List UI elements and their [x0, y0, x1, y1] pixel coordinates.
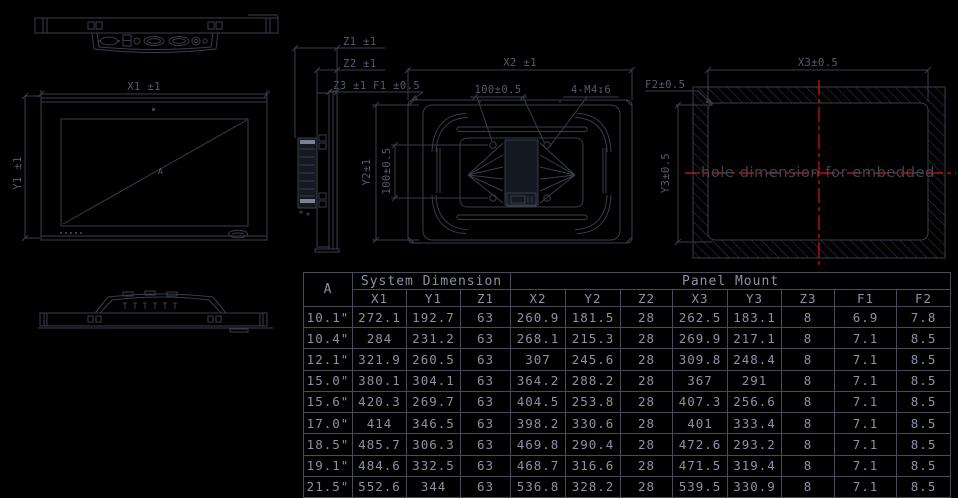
top-rear-housing: [95, 291, 226, 313]
dim-y3-label: Y3±0.5: [660, 153, 672, 193]
value-cell: 248.4: [728, 349, 782, 370]
value-cell: 346.5: [407, 413, 461, 434]
value-cell: 291: [728, 370, 782, 391]
value-cell: 398.2: [511, 413, 566, 434]
value-cell: 8: [782, 328, 835, 349]
value-cell: 304.1: [407, 370, 461, 391]
front-view-body: A: [41, 98, 267, 240]
bottom-io-view: [30, 5, 285, 63]
value-cell: 288.2: [566, 370, 621, 391]
value-cell: 28: [621, 328, 673, 349]
front-view-dimensions: X1 ±1 Y1 ±1: [12, 81, 270, 241]
value-cell: 330.9: [728, 476, 782, 497]
value-cell: 260.9: [511, 307, 566, 328]
dim-f2-label: F2±0.5: [645, 79, 685, 91]
col-header-x2: X2: [511, 290, 566, 307]
vesa-hole: [490, 142, 496, 148]
sub-header-row: X1Y1Z1X2Y2Z2X3Y3Z3F1F2: [304, 290, 951, 307]
dim-vesa-100h-label: 100±0.5: [474, 84, 521, 96]
value-cell: 306.3: [407, 434, 461, 455]
value-cell: 7.1: [835, 413, 897, 434]
table-row: 19.1"484.6332.563468.7316.628471.5319.48…: [304, 455, 951, 476]
size-cell: 19.1": [304, 455, 353, 476]
value-cell: 28: [621, 307, 673, 328]
value-cell: 63: [461, 434, 511, 455]
value-cell: 7.1: [835, 476, 897, 497]
value-cell: 269.7: [407, 391, 461, 412]
col-header-z2: Z2: [621, 290, 673, 307]
size-cell: 10.4": [304, 328, 353, 349]
size-cell: 21.5": [304, 476, 353, 497]
size-cell: 15.0": [304, 370, 353, 391]
table-row: 15.0"380.1304.163364.2288.22836729187.18…: [304, 370, 951, 391]
value-cell: 333.4: [728, 413, 782, 434]
value-cell: 407.3: [673, 391, 728, 412]
value-cell: 404.5: [511, 391, 566, 412]
dim-x1-label: X1 ±1: [127, 81, 161, 93]
value-cell: 290.4: [566, 434, 621, 455]
value-cell: 8: [782, 455, 835, 476]
value-cell: 6.9: [835, 307, 897, 328]
value-cell: 268.1: [511, 328, 566, 349]
value-cell: 8.5: [897, 434, 951, 455]
value-cell: 28: [621, 413, 673, 434]
col-header-size: A: [304, 273, 353, 307]
diagonal-size-label: A: [158, 167, 163, 176]
vesa-hole: [490, 195, 496, 201]
value-cell: 28: [621, 349, 673, 370]
value-cell: 231.2: [407, 328, 461, 349]
value-cell: 8: [782, 307, 835, 328]
value-cell: 7.1: [835, 370, 897, 391]
dim-y2-label: Y2±1: [361, 159, 373, 186]
value-cell: 420.3: [353, 391, 407, 412]
value-cell: 469.8: [511, 434, 566, 455]
value-cell: 8: [782, 370, 835, 391]
dim-x2-label: X2 ±1: [503, 57, 537, 69]
top-view: [30, 285, 302, 340]
value-cell: 63: [461, 391, 511, 412]
value-cell: 7.1: [835, 455, 897, 476]
col-header-y3: Y3: [728, 290, 782, 307]
dim-x3-label: X3±0.5: [798, 57, 838, 69]
table-row: 17.0"414346.563398.2330.628401333.487.18…: [304, 413, 951, 434]
col-header-x1: X1: [353, 290, 407, 307]
dim-thread-label: 4-M4↧6: [571, 84, 611, 96]
value-cell: 181.5: [566, 307, 621, 328]
size-cell: 12.1": [304, 349, 353, 370]
value-cell: 28: [621, 391, 673, 412]
value-cell: 468.7: [511, 455, 566, 476]
cutout-dimensions: X3±0.5 F2±0.5 Y3±0.5: [645, 57, 931, 245]
dim-y1-label: Y1 ±1: [12, 156, 24, 190]
rear-view: X2 ±1 100±0.5 4-M4↧6 Y2±1 100±0.5: [355, 55, 647, 257]
size-cell: 18.5": [304, 434, 353, 455]
camera-icon: [152, 108, 155, 111]
value-cell: 8.5: [897, 349, 951, 370]
value-cell: 472.6: [673, 434, 728, 455]
io-connector-panel: [92, 33, 218, 53]
value-cell: 7.1: [835, 349, 897, 370]
col-header-y1: Y1: [407, 290, 461, 307]
col-header-z1: Z1: [461, 290, 511, 307]
value-cell: 7.1: [835, 328, 897, 349]
value-cell: 8.5: [897, 328, 951, 349]
value-cell: 307: [511, 349, 566, 370]
value-cell: 344: [407, 476, 461, 497]
value-cell: 245.6: [566, 349, 621, 370]
table-row: 18.5"485.7306.363469.8290.428472.6293.28…: [304, 434, 951, 455]
value-cell: 28: [621, 476, 673, 497]
antenna-mount-marks: [123, 303, 177, 309]
front-buttons: [60, 232, 82, 234]
value-cell: 321.9: [353, 349, 407, 370]
value-cell: 253.8: [566, 391, 621, 412]
value-cell: 8: [782, 413, 835, 434]
table-row: 10.1"272.1192.763260.9181.528262.5183.18…: [304, 307, 951, 328]
cutout-note: hole dimension for embedded: [701, 165, 935, 181]
group-header-panel-mount: Panel Mount: [511, 273, 951, 290]
value-cell: 539.5: [673, 476, 728, 497]
front-view: X1 ±1 Y1 ±1 A: [10, 78, 292, 255]
size-cell: 17.0": [304, 413, 353, 434]
dim-vesa-100v-label: 100±0.5: [381, 147, 393, 194]
value-cell: 536.8: [511, 476, 566, 497]
value-cell: 8.5: [897, 413, 951, 434]
value-cell: 63: [461, 328, 511, 349]
side-view-body: [315, 91, 339, 252]
value-cell: 8.5: [897, 370, 951, 391]
value-cell: 401: [673, 413, 728, 434]
col-header-f1: F1: [835, 290, 897, 307]
value-cell: 8.5: [897, 391, 951, 412]
size-cell: 15.6": [304, 391, 353, 412]
group-header-system-dimension: System Dimension: [353, 273, 511, 290]
value-cell: 63: [461, 476, 511, 497]
value-cell: 63: [461, 370, 511, 391]
value-cell: 262.5: [673, 307, 728, 328]
value-cell: 7.1: [835, 434, 897, 455]
value-cell: 8: [782, 349, 835, 370]
table-row: 21.5"552.634463536.8328.228539.5330.987.…: [304, 476, 951, 497]
top-view-body: [38, 313, 273, 332]
value-cell: 328.2: [566, 476, 621, 497]
value-cell: 367: [673, 370, 728, 391]
table-row: 10.4"284231.263268.1215.328269.9217.187.…: [304, 328, 951, 349]
value-cell: 319.4: [728, 455, 782, 476]
dimension-table: A System Dimension Panel Mount X1Y1Z1X2Y…: [303, 272, 951, 498]
vesa-hole: [544, 142, 550, 148]
value-cell: 485.7: [353, 434, 407, 455]
value-cell: 63: [461, 413, 511, 434]
vesa-mount-plate: [460, 138, 583, 207]
value-cell: 260.5: [407, 349, 461, 370]
value-cell: 7.8: [897, 307, 951, 328]
value-cell: 256.6: [728, 391, 782, 412]
value-cell: 183.1: [728, 307, 782, 328]
table-row: 12.1"321.9260.563307245.628309.8248.487.…: [304, 349, 951, 370]
value-cell: 63: [461, 307, 511, 328]
value-cell: 484.6: [353, 455, 407, 476]
side-mount-box: [298, 138, 317, 216]
col-header-x3: X3: [673, 290, 728, 307]
value-cell: 28: [621, 434, 673, 455]
value-cell: 330.6: [566, 413, 621, 434]
col-header-z3: Z3: [782, 290, 835, 307]
value-cell: 8: [782, 391, 835, 412]
value-cell: 63: [461, 455, 511, 476]
value-cell: 471.5: [673, 455, 728, 476]
value-cell: 192.7: [407, 307, 461, 328]
rear-view-body: [408, 100, 632, 243]
brand-logo: [229, 230, 248, 238]
size-cell: 10.1": [304, 307, 353, 328]
table-row: 15.6"420.3269.763404.5253.828407.3256.68…: [304, 391, 951, 412]
value-cell: 552.6: [353, 476, 407, 497]
value-cell: 8: [782, 476, 835, 497]
cutout-view: X3±0.5 F2±0.5 Y3±0.5 hole dimension for …: [640, 50, 958, 266]
screen-diagonal: [63, 120, 247, 224]
value-cell: 284: [353, 328, 407, 349]
value-cell: 316.6: [566, 455, 621, 476]
value-cell: 269.9: [673, 328, 728, 349]
col-header-f2: F2: [897, 290, 951, 307]
value-cell: 364.2: [511, 370, 566, 391]
value-cell: 272.1: [353, 307, 407, 328]
value-cell: 28: [621, 455, 673, 476]
value-cell: 215.3: [566, 328, 621, 349]
col-header-y2: Y2: [566, 290, 621, 307]
value-cell: 8.5: [897, 476, 951, 497]
bottom-view-body: [35, 15, 278, 33]
technical-drawing-sheet: X1 ±1 Y1 ±1 A: [0, 0, 958, 498]
value-cell: 28: [621, 370, 673, 391]
dim-z1-label: Z1 ±1: [343, 36, 377, 48]
value-cell: 309.8: [673, 349, 728, 370]
value-cell: 63: [461, 349, 511, 370]
value-cell: 7.1: [835, 391, 897, 412]
value-cell: 217.1: [728, 328, 782, 349]
value-cell: 414: [353, 413, 407, 434]
value-cell: 293.2: [728, 434, 782, 455]
value-cell: 8.5: [897, 455, 951, 476]
value-cell: 332.5: [407, 455, 461, 476]
value-cell: 380.1: [353, 370, 407, 391]
value-cell: 8: [782, 434, 835, 455]
